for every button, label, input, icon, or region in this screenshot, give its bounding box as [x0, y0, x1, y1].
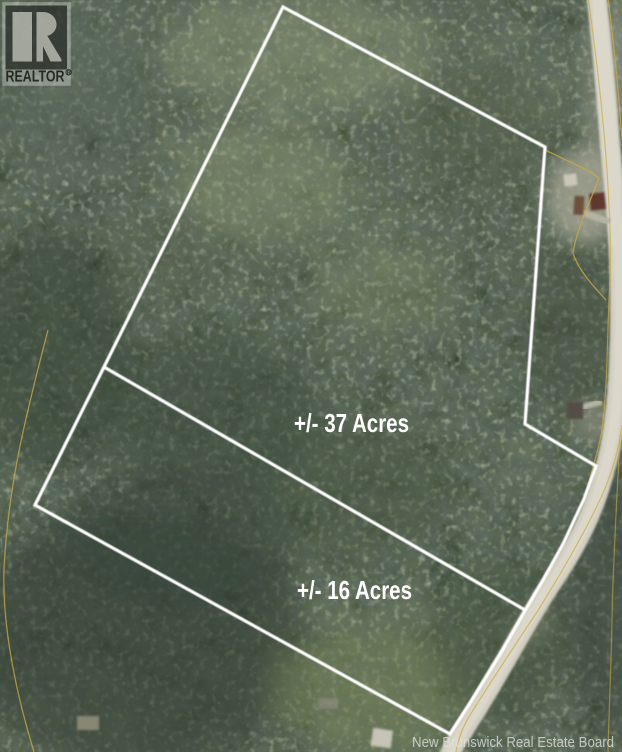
svg-text:REALTOR: REALTOR	[6, 69, 65, 86]
svg-text:R: R	[67, 71, 71, 77]
svg-text:New Brunswick Real Estate Boar: New Brunswick Real Estate Board	[412, 734, 614, 751]
svg-text:+/- 37 Acres: +/- 37 Acres	[294, 408, 409, 438]
svg-text:+/- 16 Acres: +/- 16 Acres	[297, 575, 412, 605]
